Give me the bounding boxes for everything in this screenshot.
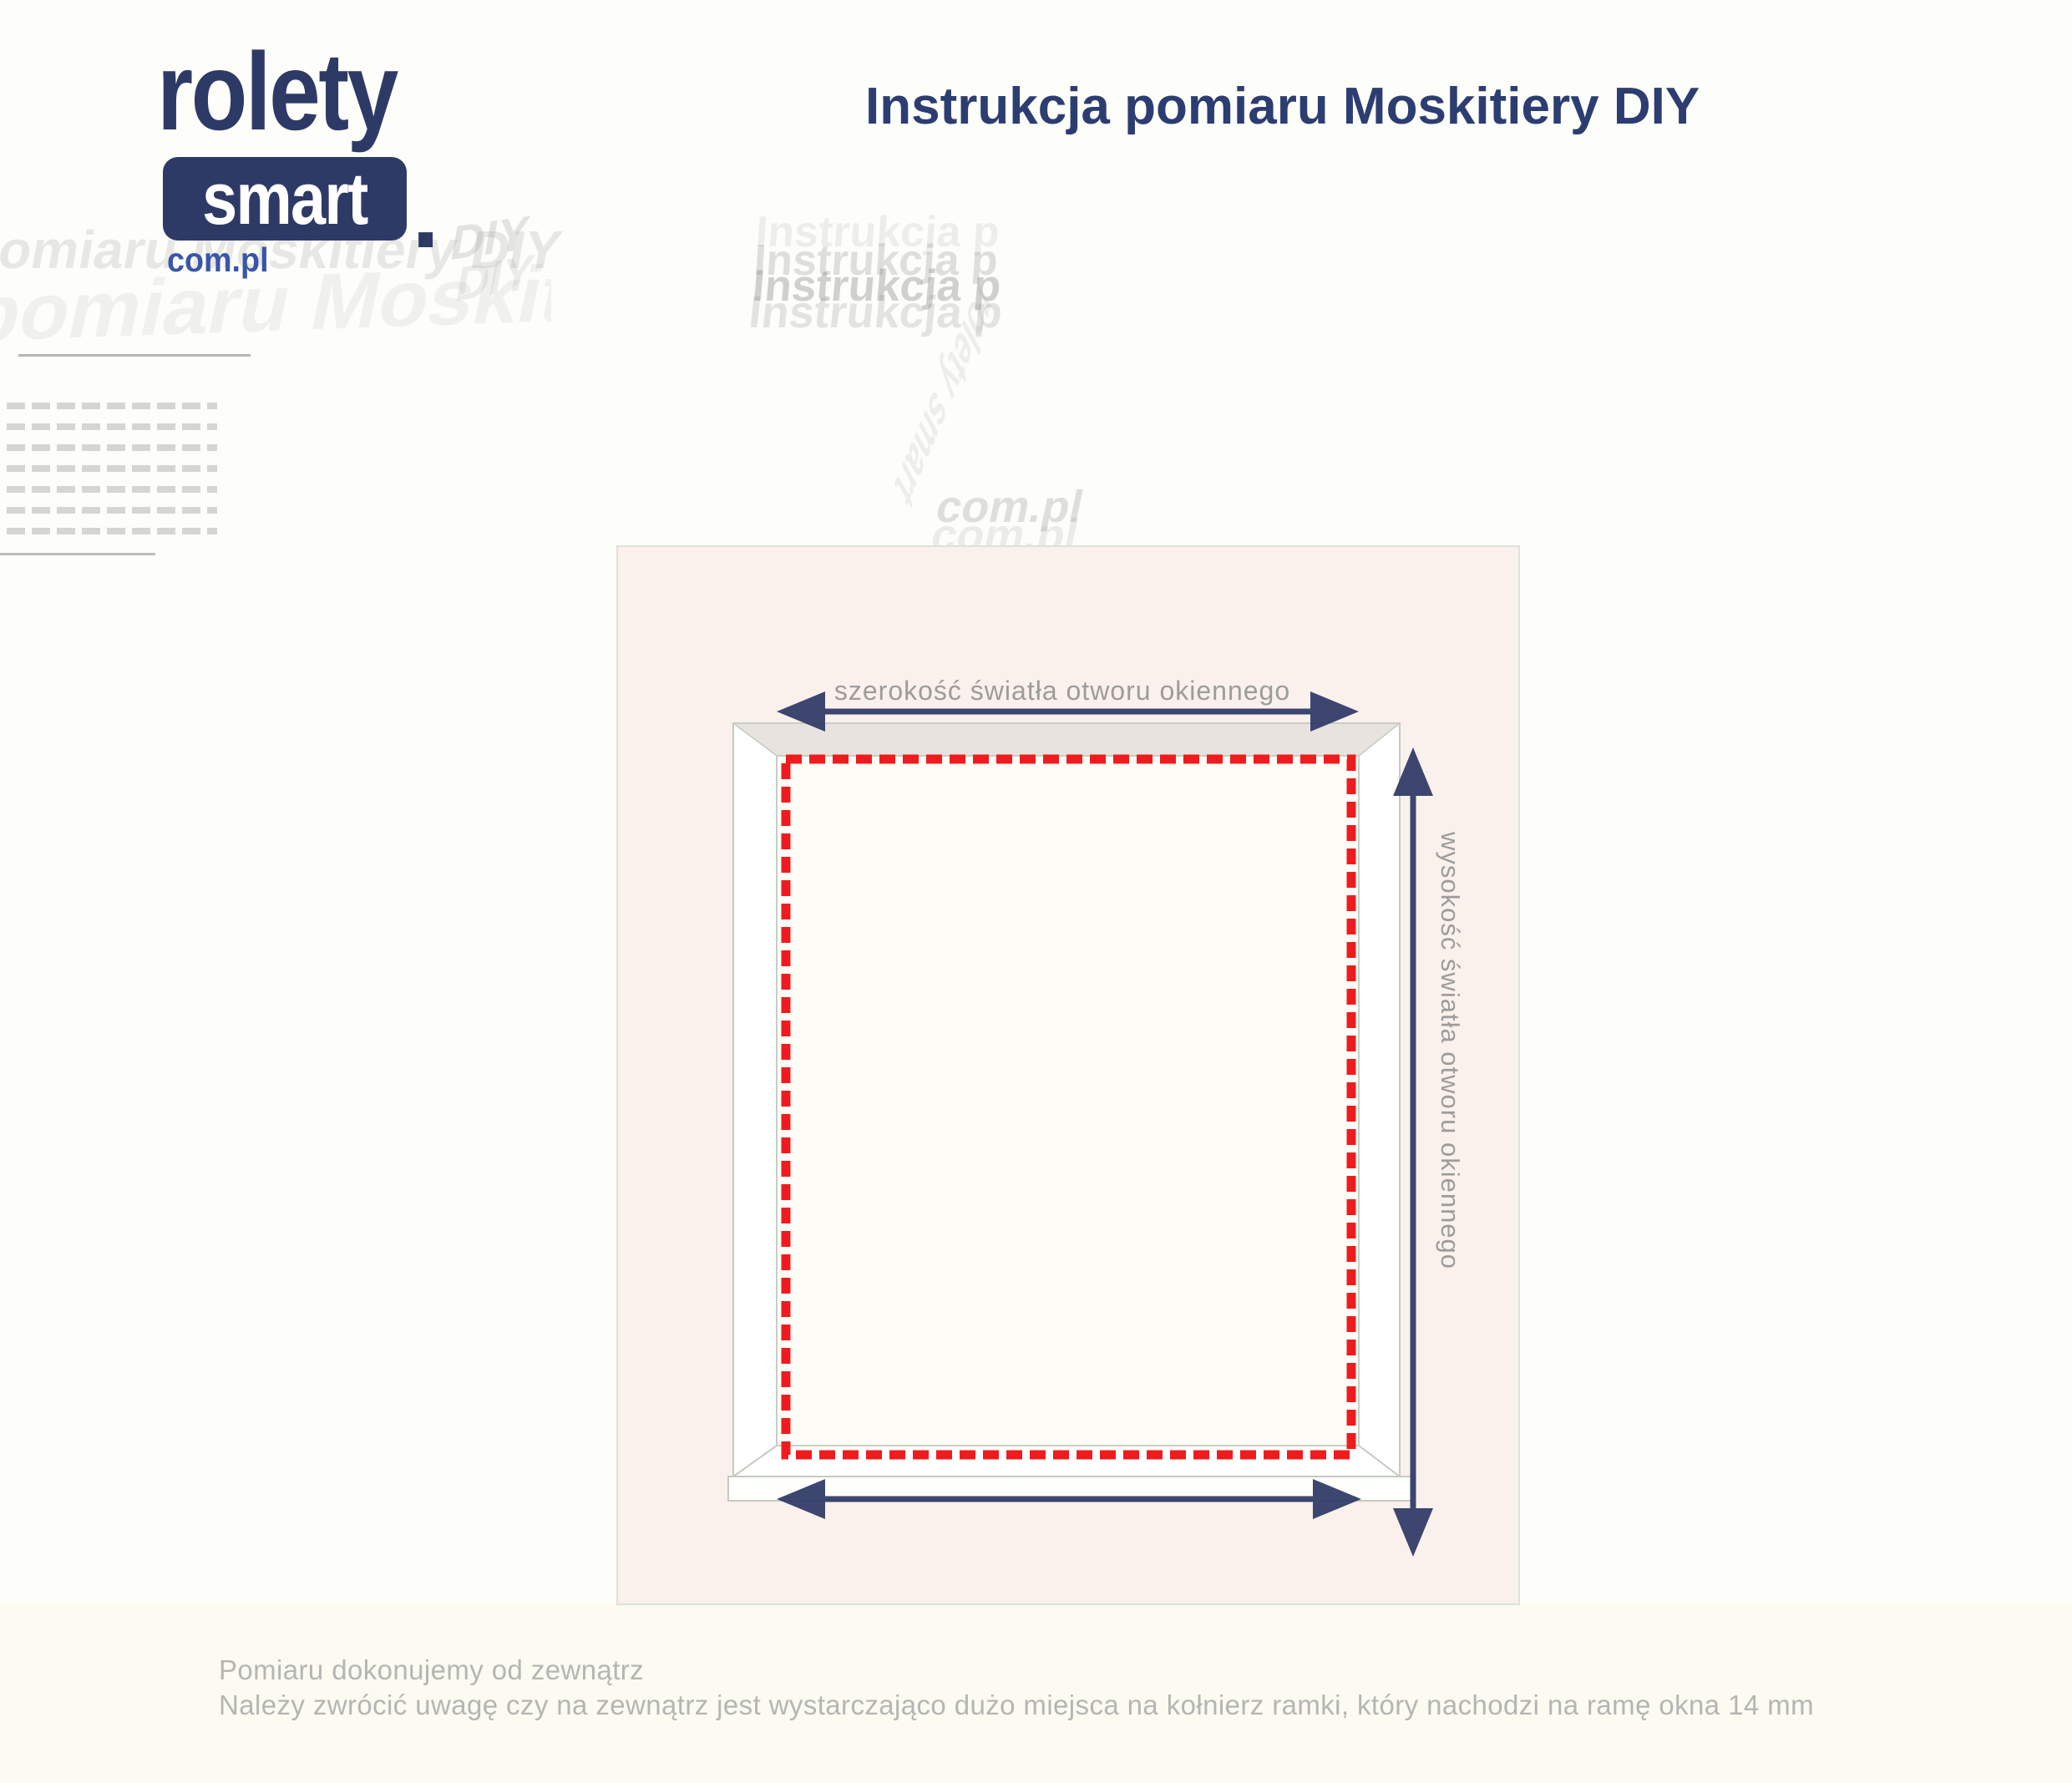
logo-domain: com.pl bbox=[167, 241, 269, 280]
footer-note-line2: Należy zwrócić uwagę czy na zewnątrz jes… bbox=[219, 1689, 1814, 1721]
window-opening bbox=[777, 756, 1359, 1446]
logo-badge: smart bbox=[163, 157, 407, 241]
page-title: Instrukcja pomiaru Moskitiery DIY bbox=[865, 77, 1750, 136]
watermark-domain-echo-1: com.pl bbox=[931, 481, 1087, 533]
watermark-title-echo-2: Instrukcja p bbox=[752, 236, 1000, 286]
watermark-left-clip: pomiaru Moskitiery DIY bbox=[0, 246, 551, 355]
watermark-diy-echo-2: DIY bbox=[452, 242, 539, 312]
watermark-title-echo-1: Instrukcja p bbox=[754, 207, 1001, 257]
logo-badge-text: smart bbox=[202, 162, 367, 236]
watermark-title-echo-3: Instrukcja p bbox=[750, 261, 1003, 312]
watermark-logo-streak: rolety smart bbox=[889, 271, 1002, 524]
logo-period: . bbox=[412, 185, 439, 241]
measurement-diagram: szerokość światła otworu okiennego wysok… bbox=[616, 545, 1520, 1606]
footer-note-line1: Pomiaru dokonujemy od zewnątrz bbox=[219, 1654, 644, 1686]
brand-logo: smart . bbox=[163, 157, 439, 241]
page: { "brand": { "logo_text": "rolety", "log… bbox=[0, 0, 2072, 1783]
watermark-left-title-echo-2: pomiaru Moskitiery DIY bbox=[0, 246, 551, 355]
watermark-diy-echo: DIY bbox=[447, 204, 534, 271]
width-label: szerokość światła otworu okiennego bbox=[834, 676, 1290, 706]
watermark-noise-block bbox=[0, 398, 217, 549]
height-label: wysokość światła otworu okiennego bbox=[1436, 831, 1465, 1269]
watermark-line-a bbox=[18, 354, 251, 357]
watermark-title-echo-4: Instrukcja p bbox=[747, 286, 1006, 338]
watermark-line-b bbox=[0, 553, 155, 555]
window-top-bevel bbox=[733, 723, 1400, 756]
logo-wordmark: rolety bbox=[157, 28, 397, 154]
